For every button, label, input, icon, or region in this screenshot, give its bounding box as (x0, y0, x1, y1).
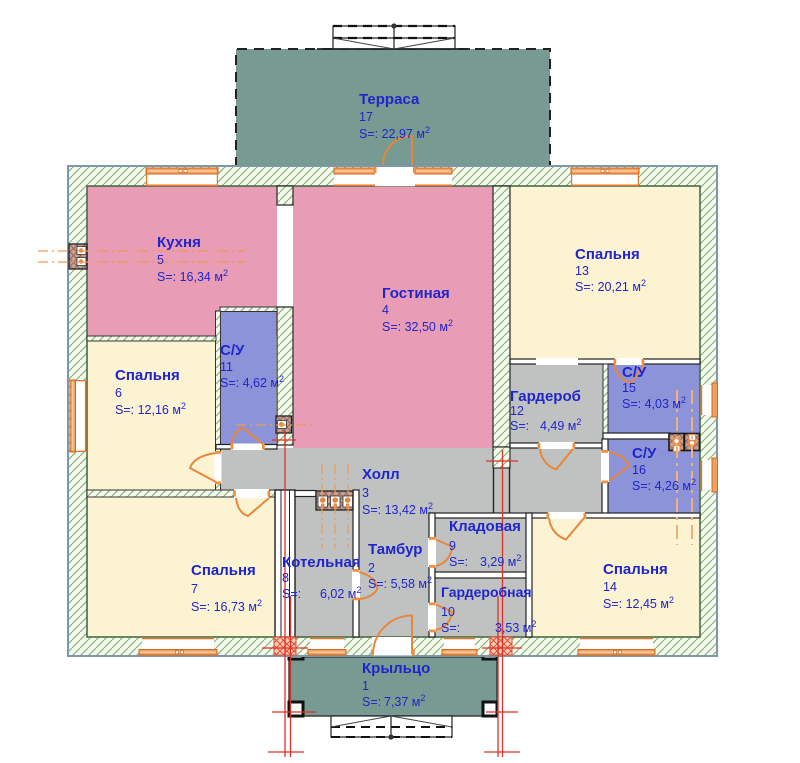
svg-text:С/У: С/У (632, 445, 657, 462)
svg-text:1: 1 (362, 679, 369, 693)
svg-text:Спальня: Спальня (575, 246, 640, 263)
svg-text:6: 6 (115, 386, 122, 400)
svg-text:11: 11 (220, 360, 233, 374)
svg-text:S=: 12,16 м2: S=: 12,16 м2 (115, 401, 186, 417)
svg-text:3: 3 (362, 486, 369, 500)
svg-text:2: 2 (368, 561, 375, 575)
svg-text:5: 5 (157, 253, 164, 267)
svg-text:4,49 м2: 4,49 м2 (540, 417, 581, 433)
svg-text:Гардероб: Гардероб (510, 388, 581, 405)
svg-text:S=: 4,62 м2: S=: 4,62 м2 (220, 374, 284, 390)
svg-text:Гостиная: Гостиная (382, 285, 450, 302)
svg-text:13: 13 (575, 264, 589, 278)
svg-text:Спальня: Спальня (191, 562, 256, 579)
svg-text:S=: 16,34 м2: S=: 16,34 м2 (157, 268, 228, 284)
svg-text:Кухня: Кухня (157, 234, 201, 251)
svg-text:8: 8 (282, 571, 289, 585)
svg-text:14: 14 (603, 580, 617, 594)
svg-text:Гардеробная: Гардеробная (441, 584, 532, 600)
svg-text:12: 12 (510, 404, 524, 418)
svg-text:Терраса: Терраса (359, 91, 420, 108)
svg-text:10: 10 (441, 605, 455, 619)
svg-text:С/У: С/У (622, 364, 647, 381)
svg-text:7: 7 (191, 582, 198, 596)
svg-text:С/У: С/У (220, 342, 245, 359)
svg-text:S=: 5,58 м2: S=: 5,58 м2 (368, 575, 432, 591)
svg-text:Котельная: Котельная (282, 554, 361, 571)
svg-text:S=: 4,26 м2: S=: 4,26 м2 (632, 477, 696, 493)
svg-text:S=: 4,03 м2: S=: 4,03 м2 (622, 395, 686, 411)
svg-text:Холл: Холл (362, 466, 400, 483)
svg-text:Спальня: Спальня (603, 561, 668, 578)
svg-text:S=: 32,50 м2: S=: 32,50 м2 (382, 318, 453, 334)
svg-text:Тамбур: Тамбур (368, 541, 422, 558)
svg-text:Спальня: Спальня (115, 367, 180, 384)
svg-text:3,53 м2: 3,53 м2 (495, 619, 536, 635)
svg-text:3,29 м2: 3,29 м2 (480, 553, 521, 569)
svg-text:S=: 16,73 м2: S=: 16,73 м2 (191, 598, 262, 614)
svg-text:17: 17 (359, 110, 373, 124)
svg-text:S=:: S=: (510, 419, 529, 433)
svg-text:9: 9 (449, 539, 456, 553)
svg-text:S=: 22,97 м2: S=: 22,97 м2 (359, 125, 430, 141)
svg-text:16: 16 (632, 463, 646, 477)
svg-text:15: 15 (622, 381, 636, 395)
svg-text:S=:: S=: (449, 555, 468, 569)
svg-text:S=: 20,21 м2: S=: 20,21 м2 (575, 278, 646, 294)
svg-text:S=: 12,45 м2: S=: 12,45 м2 (603, 595, 674, 611)
svg-text:7,37 м2: 7,37 м2 (384, 693, 425, 709)
svg-text:Крыльцо: Крыльцо (362, 660, 430, 677)
svg-text:S=:: S=: (441, 621, 460, 635)
svg-text:Кладовая: Кладовая (449, 518, 521, 535)
svg-text:S=: 13,42 м2: S=: 13,42 м2 (362, 501, 433, 517)
svg-text:4: 4 (382, 303, 389, 317)
svg-text:6,02 м2: 6,02 м2 (320, 585, 361, 601)
svg-text:S=:: S=: (282, 587, 301, 601)
svg-text:S=:: S=: (362, 695, 381, 709)
